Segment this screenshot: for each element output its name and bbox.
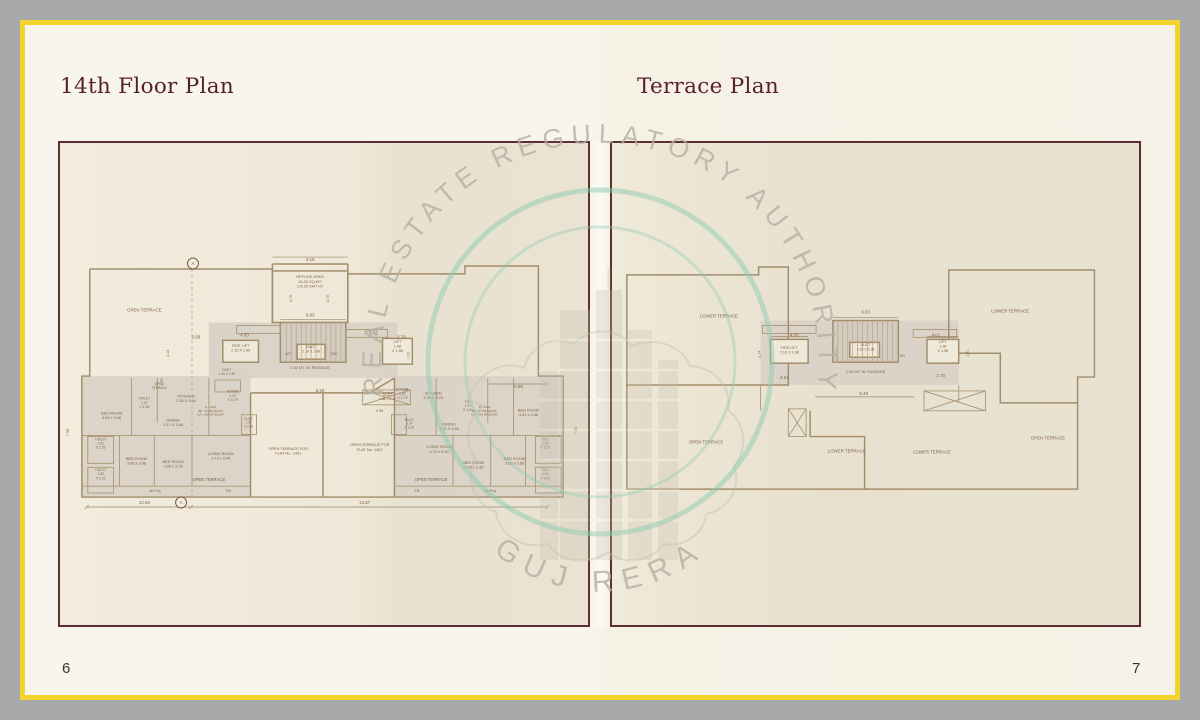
floor-plan-panel: 3.19REFUGE AREA16.00 SQ.MT.C/6.25 SMT HT… <box>58 141 590 627</box>
plan-label: LOWER TERRACE <box>913 449 951 454</box>
left-page-title: 14th Floor Plan <box>60 74 234 99</box>
plan-label: 3.19 <box>306 257 315 262</box>
plan-label: Air Proj. <box>149 489 161 493</box>
plan-label: 4.70 <box>289 295 293 302</box>
plan-label: OPEN TERRACE <box>127 308 161 313</box>
plan-label: BED ROOM3.05 x 3.35 <box>463 461 484 470</box>
plan-label: F.B. <box>415 489 421 493</box>
plan-label: 2.58 <box>192 334 201 339</box>
plan-label: A <box>180 500 183 505</box>
plan-label: 4.93 <box>790 332 799 337</box>
plan-label: OPEN TERRACE <box>415 477 448 482</box>
page-number-left: 6 <box>62 660 70 677</box>
plan-label: REFUGE AREA16.00 SQ.MT.C/6.25 SMT HT <box>296 275 324 288</box>
plan-label: 4.93 <box>240 332 249 337</box>
plan-label: A <box>191 261 194 266</box>
plan-label: LOWER TERRACE <box>991 309 1029 314</box>
plan-label: 9.46 <box>859 391 868 396</box>
plan-label: BED ROOM3.81 x 3.66 <box>101 411 122 420</box>
plan-label: 1.91 <box>966 350 970 357</box>
plan-label: BED ROOM3.05 x 3.35 <box>163 460 184 469</box>
plan-label: 4.01 <box>932 332 941 337</box>
plan-label: LOWER TERRACE <box>700 314 738 319</box>
plan-label: 5.98 <box>514 384 523 389</box>
plan-label: BED ROOM3.81 x 3.66 <box>518 408 539 417</box>
plan-label: 5.25 <box>316 388 325 393</box>
plan-label: 6.83 <box>861 310 870 315</box>
plan-label: DN <box>900 354 906 358</box>
plan-label: LIVING ROOM3.73 x 5.49 <box>208 452 234 461</box>
plan-label: 2.40 MT. W. PASSAGE <box>846 370 886 374</box>
plan-label: 6.83 <box>306 313 315 318</box>
plan-label: FIRE LIFT2.10 X 1.98 <box>780 346 799 355</box>
plan-label: 2.14 <box>166 350 170 357</box>
plan-label: 7.96 <box>66 429 70 436</box>
plan-label: 7.58 <box>574 427 578 434</box>
plan-label: OPEN TERRACE FORFLAT No. 1401 <box>268 447 308 456</box>
plan-label: F.B. <box>226 489 232 493</box>
plan-label: 1.91 <box>406 352 410 359</box>
plan-label: 4.01 <box>369 330 378 335</box>
page-number-right: 7 <box>1132 660 1140 677</box>
plan-label: 12.50 <box>139 500 151 505</box>
terrace-plan-drawing: LOWER TERRACELOWER TERRACE6.834.934.012.… <box>612 143 1139 625</box>
plan-label: 4.70 <box>326 295 330 302</box>
plan-label: DN <box>331 352 337 356</box>
plan-label: KITCHEN3.35 X 3.04 <box>423 392 444 401</box>
plan-label: FIRE LIFT2.10 X 1.98 <box>231 344 250 353</box>
plan-label: LIVING ROOM3.73 x 5.49 <box>426 445 452 454</box>
plan-label: LOWER TERRACE <box>828 448 866 453</box>
plan-label: BED ROOM3.66 x 3.66 <box>126 457 147 466</box>
terrace-plan-panel: LOWER TERRACELOWER TERRACE6.834.934.012.… <box>610 141 1141 627</box>
plan-label: DUCT1.37X 2.29 <box>244 417 253 429</box>
floor-plan-drawing: 3.19REFUGE AREA16.00 SQ.MT.C/6.25 SMT HT… <box>60 143 588 625</box>
plan-label: OPEN TERRACE <box>193 477 226 482</box>
plan-label: 14.57 <box>359 500 371 505</box>
plan-label: Air Proj. <box>485 489 497 493</box>
plan-label: 2.79 <box>397 334 406 339</box>
plan-label: 4.39 <box>376 409 383 413</box>
page-spine <box>591 141 609 627</box>
plan-label: 2.14 <box>758 351 762 358</box>
plan-label: 2.40 MT. W. PASSAGE <box>290 366 330 370</box>
plan-label: BED ROOM3.66 x 3.66 <box>504 457 525 466</box>
plan-label: DUCT4.88 X 2.12 <box>379 393 396 401</box>
right-page-title: Terrace Plan <box>637 74 779 99</box>
plan-label: OPEN TERRACE <box>1031 436 1065 441</box>
plan-label: 2.70 <box>937 373 946 378</box>
plan-label: 3.51 <box>780 375 789 380</box>
plan-label: OPEN TERRACE <box>689 440 723 445</box>
plan-label: OPEN TERRACE FORFLAT No. 1402 <box>350 443 390 452</box>
plan-label: UP <box>286 352 292 356</box>
plan-label: KITCHEN3.35 X 3.04 <box>176 395 197 404</box>
